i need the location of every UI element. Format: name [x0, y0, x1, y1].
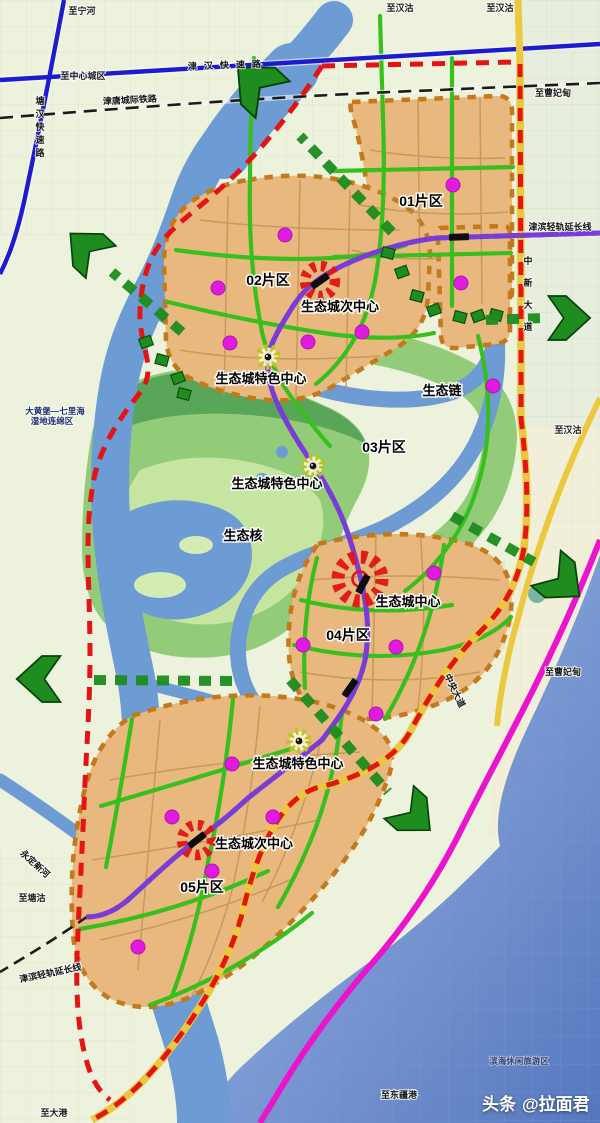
- node-dot: [225, 757, 239, 771]
- label-tanghan-expressway: 塘汉快速路: [35, 95, 45, 158]
- node-dot: [211, 281, 225, 295]
- label-to-hangu-2: 至汉沽: [486, 2, 513, 13]
- label-to-hangu-3: 至汉沽: [554, 424, 581, 435]
- feature-center-core: [296, 738, 303, 745]
- label-feature-center-south: 生态城特色中心: [252, 756, 343, 771]
- road-yellow-north: [518, 0, 520, 64]
- label-wetland-1: 大黄堡—七里海: [25, 406, 85, 416]
- label-to-city-center: 至中心城区: [60, 70, 105, 81]
- label-district-03: 03片区: [362, 439, 406, 455]
- pond-2: [276, 446, 288, 458]
- grid-top-right: [516, 0, 600, 432]
- node-dot: [301, 335, 315, 349]
- label-feature-center-north: 生态城特色中心: [215, 371, 306, 386]
- node-dot: [486, 379, 500, 393]
- lake-island-1: [134, 572, 186, 598]
- label-to-dongjiang-port: 至东疆港: [381, 1089, 418, 1100]
- node-dot: [389, 640, 403, 654]
- label-to-hangu-1: 至汉沽: [386, 2, 413, 13]
- map-canvas: 津汉快速路津唐城际铁路塘汉快速路津滨轻轨延长线中新大道中央大道津滨轻轨延长线永定…: [0, 0, 600, 1123]
- feature-center-core: [265, 354, 272, 361]
- eco-city-planning-map: 津汉快速路津唐城际铁路塘汉快速路津滨轻轨延长线中新大道中央大道津滨轻轨延长线永定…: [0, 0, 600, 1123]
- label-district-05: 05片区: [180, 879, 224, 895]
- label-to-dagang: 至大港: [40, 1107, 68, 1118]
- node-dot: [446, 178, 460, 192]
- label-to-caofeidian-s: 至曹妃甸: [545, 666, 581, 677]
- node-dot: [278, 228, 292, 242]
- label-wetland-2: 湿地连绵区: [31, 416, 74, 426]
- label-district-01: 01片区: [399, 193, 443, 209]
- feature-center-dot: [311, 464, 313, 466]
- watermark: 头条 @拉面君: [482, 1090, 590, 1115]
- feature-center-dot: [297, 739, 299, 741]
- label-feature-center-mid: 生态城特色中心: [231, 476, 322, 491]
- node-dot: [454, 276, 468, 290]
- label-district-02: 02片区: [246, 272, 290, 288]
- label-jinbin-lightrail-ext-ne: 津滨轻轨延长线: [528, 221, 591, 232]
- label-to-ninghe: 至宁河: [68, 5, 95, 16]
- node-dot: [223, 336, 237, 350]
- rail-station: [449, 233, 469, 241]
- node-dot: [205, 864, 219, 878]
- node-dot: [355, 325, 369, 339]
- label-to-caofeidian-n: 至曹妃甸: [535, 87, 571, 98]
- watermark-brand: 头条: [482, 1090, 516, 1115]
- label-eco-core: 生态核: [223, 528, 262, 543]
- label-district-04: 04片区: [326, 627, 370, 643]
- label-to-tanggu: 至塘沽: [18, 892, 45, 903]
- label-subcenter-south: 生态城次中心: [215, 836, 293, 851]
- label-binhai-leisure: 滨海休闲旅游区: [489, 1056, 549, 1066]
- node-dot: [296, 638, 310, 652]
- feature-center-core: [310, 463, 317, 470]
- feature-center-dot: [266, 355, 268, 357]
- node-dot: [131, 940, 145, 954]
- watermark-handle: @拉面君: [522, 1090, 590, 1115]
- label-subcenter-north: 生态城次中心: [301, 299, 379, 314]
- arrow-tail: [486, 318, 542, 320]
- label-eco-chain: 生态链: [422, 383, 462, 398]
- lake-island-2: [179, 536, 213, 554]
- label-city-center: 生态城中心: [375, 594, 440, 609]
- node-dot: [369, 707, 383, 721]
- node-dot: [266, 810, 280, 824]
- node-dot: [427, 566, 441, 580]
- node-dot: [165, 810, 179, 824]
